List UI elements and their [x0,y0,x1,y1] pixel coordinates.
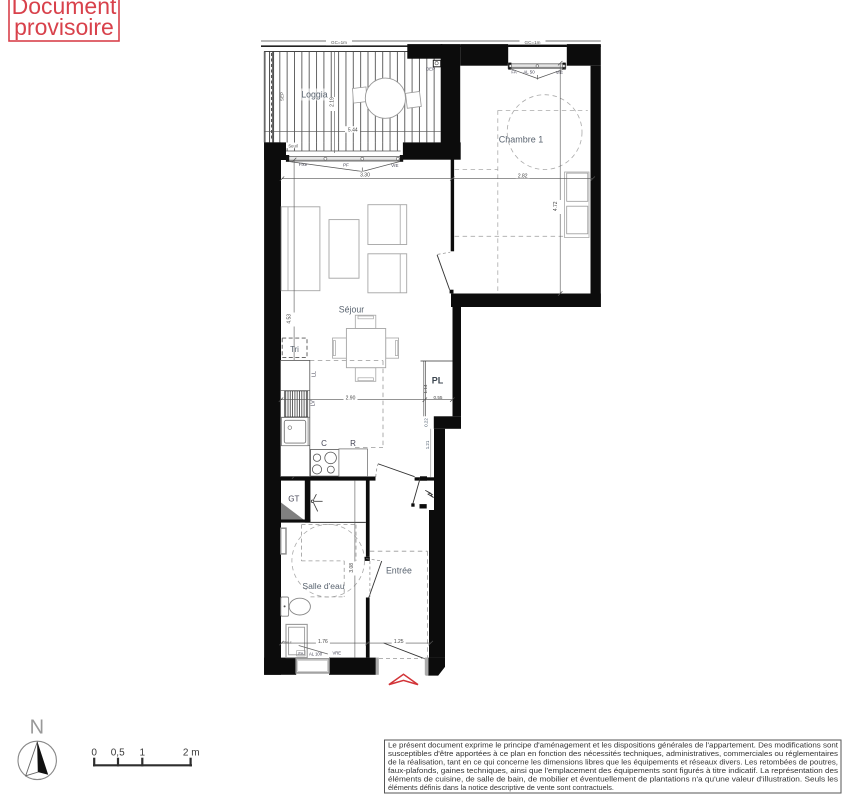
svg-text:2 m: 2 m [183,748,200,759]
svg-text:0.22: 0.22 [424,418,429,427]
svg-text:Chambre 1: Chambre 1 [499,134,544,144]
svg-text:3.30: 3.30 [360,172,370,178]
svg-text:AL 50: AL 50 [523,70,535,75]
svg-text:DEP: DEP [426,67,435,72]
svg-text:1.25: 1.25 [394,639,404,645]
svg-text:Fixe: Fixe [299,162,308,167]
svg-text:C: C [321,439,327,448]
svg-text:VrE: VrE [391,163,398,168]
svg-text:Øe.s: Øe.s [284,640,292,644]
svg-text:Seuil: Seuil [288,143,297,148]
svg-text:3.08: 3.08 [349,563,355,573]
svg-text:éléments définis dans la notic: éléments définis dans la notice descript… [388,783,614,792]
svg-text:provisoire: provisoire [14,14,114,40]
svg-text:GC=1m: GC=1m [331,40,347,45]
svg-text:GC=1m: GC=1m [525,40,541,45]
svg-text:AL 100: AL 100 [309,651,323,656]
svg-text:Séjour: Séjour [339,305,364,315]
svg-text:Salle d'eau: Salle d'eau [302,581,344,591]
svg-text:LL: LL [312,371,318,377]
svg-text:SEP: SEP [280,92,285,101]
svg-text:0,5: 0,5 [111,748,125,759]
svg-text:FA: FA [298,651,303,656]
svg-text:Tri: Tri [290,345,299,354]
svg-text:2.19: 2.19 [330,97,336,107]
svg-text:N: N [30,716,44,738]
svg-text:5.44: 5.44 [348,127,358,133]
svg-text:VrE: VrE [556,70,563,75]
svg-text:2.82: 2.82 [518,174,528,180]
svg-text:Entrée: Entrée [386,565,412,575]
svg-text:LV: LV [311,400,317,406]
svg-text:0.55: 0.55 [434,395,443,400]
svg-text:GT: GT [288,495,299,504]
svg-text:PF: PF [343,162,349,167]
svg-text:FA: FA [511,70,516,75]
svg-text:4.53: 4.53 [287,314,293,324]
svg-text:0: 0 [91,748,97,759]
svg-text:1.14: 1.14 [423,384,428,393]
svg-text:4.72: 4.72 [553,201,559,211]
svg-text:1.76: 1.76 [318,639,328,645]
svg-text:1: 1 [140,748,146,759]
svg-text:VRE: VRE [332,651,341,656]
svg-text:1.21: 1.21 [425,440,430,449]
svg-text:R: R [350,439,356,448]
svg-text:Loggia: Loggia [301,90,328,100]
svg-text:2.90: 2.90 [346,396,356,402]
svg-text:PL: PL [432,376,444,386]
